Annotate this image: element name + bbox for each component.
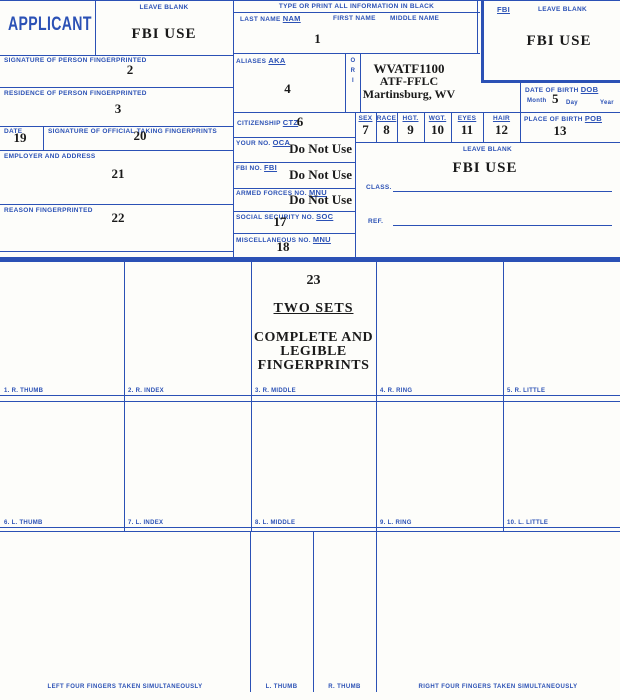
- right-four-fingers-label: RIGHT FOUR FINGERS TAKEN SIMULTANEOUSLY: [376, 684, 620, 690]
- r-thumb-plain-label: R. THUMB: [313, 684, 376, 690]
- print-label-cell: 8. L. MIDDLE: [251, 518, 376, 528]
- grid-line: [0, 204, 233, 205]
- reason-field[interactable]: 22: [88, 211, 148, 225]
- print-box-r-middle[interactable]: [251, 262, 376, 401]
- print-box-l-index[interactable]: [124, 401, 251, 531]
- aliases-field[interactable]: 4: [275, 82, 300, 96]
- official-signature-field[interactable]: 20: [120, 129, 160, 143]
- print-box-l-thumb[interactable]: [0, 401, 124, 531]
- l-thumb-plain-label: L. THUMB: [250, 684, 313, 690]
- class-rule-line: [393, 191, 612, 192]
- employer-label: EMPLOYER AND ADDRESS: [4, 153, 95, 161]
- misc-no-field[interactable]: 18: [258, 240, 308, 254]
- ori-field[interactable]: WVATF1100 ATF-FFLC Martinsburg, WV: [357, 62, 461, 101]
- ref-label: REF.: [368, 218, 383, 226]
- print-box-r-ring[interactable]: [376, 262, 503, 401]
- grid-line: [0, 126, 233, 127]
- r-thumb-label: 1. R. THUMB: [4, 388, 43, 394]
- l-thumb-label: 6. L. THUMB: [4, 520, 43, 526]
- ssn-field[interactable]: 17: [255, 215, 305, 229]
- name-field[interactable]: 1: [305, 32, 330, 46]
- r-ring-label: 4. R. RING: [380, 388, 412, 394]
- wgt-field[interactable]: 10: [424, 123, 451, 137]
- fingerprint-card: APPLICANT LEAVE BLANK FBI USE SIGNATURE …: [0, 0, 620, 700]
- dob-month-label: Month: [527, 97, 547, 105]
- l-middle-label: 8. L. MIDDLE: [255, 520, 295, 526]
- citizenship-field[interactable]: 6: [290, 115, 310, 129]
- grid-line: [520, 112, 521, 142]
- grid-line: [233, 12, 480, 13]
- fbi-box-thick-border: [481, 0, 484, 82]
- grid-line: [0, 251, 233, 252]
- dob-field[interactable]: 5: [552, 92, 559, 106]
- dob-code: DOB: [581, 85, 599, 94]
- grid-line: [233, 1, 234, 257]
- print-box-left-four-fingers[interactable]: [0, 531, 250, 691]
- print-label-cell: 5. R. LITTLE: [503, 386, 620, 396]
- sex-field[interactable]: 7: [355, 123, 376, 137]
- leave-blank-label: LEAVE BLANK: [95, 4, 233, 12]
- print-box-l-ring[interactable]: [376, 401, 503, 531]
- nam-code: NAM: [283, 14, 301, 23]
- aliases-label: ALIASES AKA: [236, 57, 286, 66]
- print-box-l-middle[interactable]: [251, 401, 376, 531]
- grid-line: [0, 55, 233, 56]
- print-label-cell: 6. L. THUMB: [0, 518, 124, 528]
- print-box-l-little[interactable]: [503, 401, 620, 531]
- hgt-field[interactable]: 9: [397, 123, 424, 137]
- l-little-label: 10. L. LITTLE: [507, 520, 548, 526]
- reason-label: REASON FINGERPRINTED: [4, 207, 93, 215]
- aka-code: AKA: [268, 56, 285, 65]
- grid-line: [233, 211, 355, 212]
- ori-label: O R I: [349, 56, 357, 86]
- date-field[interactable]: 19: [6, 131, 34, 145]
- grid-line: [233, 233, 355, 234]
- l-ring-label: 9. L. RING: [380, 520, 412, 526]
- r-little-label: 5. R. LITTLE: [507, 388, 545, 394]
- residence-label: RESIDENCE OF PERSON FINGERPRINTED: [4, 90, 147, 98]
- class-box-leave-blank: LEAVE BLANK: [355, 146, 620, 154]
- grid-line: [43, 126, 44, 150]
- grid-line: [233, 53, 480, 54]
- print-label-cell: 2. R. INDEX: [124, 386, 251, 396]
- grid-line: [0, 0, 620, 1]
- l-index-label: 7. L. INDEX: [128, 520, 163, 526]
- hair-field[interactable]: 12: [483, 123, 520, 137]
- dob-day-label: Day: [566, 99, 578, 107]
- dob-year-label: Year: [600, 99, 614, 107]
- last-name-label: LAST NAME NAM: [240, 15, 301, 24]
- print-label-cell: 7. L. INDEX: [124, 518, 251, 528]
- fbi-use-stamp: FBI USE: [95, 27, 233, 41]
- grid-line: [481, 80, 620, 83]
- first-name-label: FIRST NAME: [333, 15, 376, 23]
- fbi-box-use-stamp: FBI USE: [500, 34, 618, 48]
- grid-line: [355, 142, 620, 143]
- race-field[interactable]: 8: [376, 123, 397, 137]
- print-box-r-index[interactable]: [124, 262, 251, 401]
- middle-name-label: MIDDLE NAME: [390, 15, 439, 23]
- print-box-r-little[interactable]: [503, 262, 620, 401]
- your-no-field[interactable]: Do Not Use: [240, 142, 352, 156]
- residence-field[interactable]: 3: [88, 102, 148, 116]
- print-label-cell: 4. R. RING: [376, 386, 503, 396]
- signature-person-field[interactable]: 2: [100, 63, 160, 77]
- print-label-cell: 9. L. RING: [376, 518, 503, 528]
- grid-line: [233, 137, 355, 138]
- print-label-cell: 10. L. LITTLE: [503, 518, 620, 528]
- print-label-cell: 3. R. MIDDLE: [251, 386, 376, 396]
- applicant-type-label: APPLICANT: [8, 14, 92, 36]
- grid-line: [0, 150, 233, 151]
- type-print-header: TYPE OR PRINT ALL INFORMATION IN BLACK: [233, 3, 480, 11]
- fbi-box-leave-blank: LEAVE BLANK: [505, 6, 620, 14]
- grid-line: [520, 82, 521, 113]
- armed-forces-no-field[interactable]: Do Not Use: [240, 193, 352, 207]
- r-middle-label: 3. R. MIDDLE: [255, 388, 296, 394]
- grid-line: [233, 162, 355, 163]
- grid-line: [0, 87, 233, 88]
- grid-line: [233, 112, 620, 113]
- ref-rule-line: [393, 225, 612, 226]
- print-box-right-four-fingers[interactable]: [376, 531, 620, 691]
- dob-label: DATE OF BIRTH DOB: [525, 86, 598, 95]
- r-index-label: 2. R. INDEX: [128, 388, 164, 394]
- grid-line: [345, 53, 346, 112]
- pob-field[interactable]: 13: [530, 124, 590, 138]
- print-box-r-thumb[interactable]: [0, 262, 124, 401]
- class-box-fbi-use: FBI USE: [355, 161, 615, 175]
- print-label-cell: 1. R. THUMB: [0, 386, 124, 396]
- class-label: CLASS.: [366, 184, 392, 192]
- eyes-field[interactable]: 11: [451, 123, 483, 137]
- employer-field[interactable]: 21: [88, 167, 148, 181]
- soc-code: SOC: [316, 212, 333, 221]
- mnu2-code: MNU: [313, 235, 331, 244]
- pob-code: POB: [585, 114, 602, 123]
- left-four-fingers-label: LEFT FOUR FINGERS TAKEN SIMULTANEOUSLY: [0, 684, 250, 690]
- fbi-no-field[interactable]: Do Not Use: [240, 168, 352, 182]
- print-box-r-thumb-plain[interactable]: [313, 531, 376, 691]
- print-box-l-thumb-plain[interactable]: [250, 531, 313, 691]
